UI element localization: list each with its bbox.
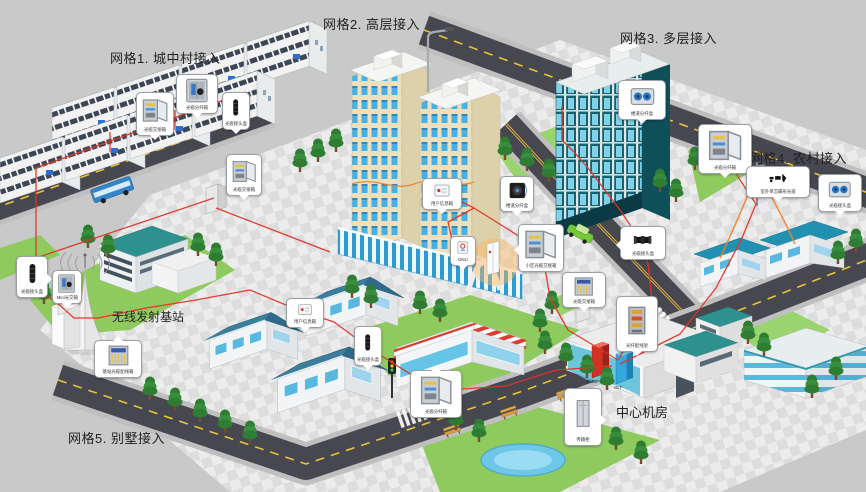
grid2-label: 网格2. 高层接入 [323, 14, 420, 33]
omdf-tag: OMDF [586, 379, 599, 384]
open-cabinet-icon [231, 157, 257, 186]
grid1-label: 网格1. 城中村接入 [110, 48, 220, 67]
callout-user-info-box-2: 用户信息箱 [286, 298, 324, 328]
callout-onu: ONU [450, 236, 476, 266]
callout-splice-closure-5: 光缆接头盒 [354, 326, 382, 366]
cabinet-icon [56, 273, 77, 294]
callout-distribution-box-3: 光缆分纤箱 [410, 370, 462, 418]
callout-cross-connect-cabinet-1: 光缆交接箱 [136, 92, 174, 136]
callout-corridor-splitter-box-2: 楼道分纤盒 [618, 80, 666, 120]
fiber-cabinet-icon [567, 275, 600, 298]
splice-closure-horizontal-icon [625, 229, 660, 250]
callout-distribution-box-1: 光缆分纤箱 [176, 74, 218, 114]
callout-splice-closure-2: 光缆接头盒 [16, 256, 48, 298]
rack-icon [100, 343, 137, 368]
cabinet-icon [181, 77, 213, 104]
callout-distribution-box-2: 光缆分纤箱 [698, 124, 752, 174]
callout-splice-closure-3: 光缆接头盒 [620, 226, 666, 260]
open-cabinet-icon [141, 95, 169, 126]
callout-mini-cabinet: Mini光交箱 [52, 270, 82, 304]
spool-box-icon [823, 177, 856, 202]
flat-box-icon [291, 301, 319, 318]
central-office-label: 中心机房 [616, 402, 668, 421]
splice-closure-vertical-icon [358, 329, 377, 356]
spool-box-icon [624, 83, 661, 110]
grid3-label: 网格3. 多层接入 [620, 28, 717, 47]
grid3-midrise-building [556, 41, 670, 238]
open-cabinet-icon [704, 127, 746, 164]
callout-base-station-distribution: 基站光缆配线箱 [94, 340, 142, 378]
city-illustration [0, 0, 866, 492]
ftth-network-diagram: 网格1. 城中村接入 网格2. 高层接入 网格3. 多层接入 网格4. 农村接入… [0, 0, 866, 492]
open-cabinet-icon [523, 227, 558, 262]
callout-splice-closure-1: 光缆接头盒 [222, 92, 250, 130]
callout-drop-cable-fittings: 室外单芯蝶形光缆 [746, 166, 810, 198]
grid5-label: 网格5. 别墅接入 [68, 428, 165, 447]
callout-community-cross-connect: 小区光缆交接箱 [518, 224, 564, 272]
onu-icon [454, 239, 472, 256]
wireless-base-station-label: 无线发射基站 [112, 308, 184, 325]
callout-cross-connect-cabinet-2: 光缆交接箱 [226, 154, 262, 196]
callout-transmission-cabinet: 传输柜 [564, 388, 602, 446]
callout-splice-closure-4: 光缆接头盒 [818, 174, 862, 212]
aerial-fittings-icon [752, 169, 803, 188]
fiber-frame-icon [621, 299, 653, 342]
splice-closure-vertical-icon [226, 95, 245, 120]
callout-corridor-splitter-box-1: 楼道分纤盒 [500, 176, 534, 212]
tall-cabinet-icon [569, 391, 597, 436]
grid4-label: 网格4. 农村接入 [750, 148, 847, 167]
cable-reel-icon [505, 179, 530, 202]
flat-box-icon [427, 181, 457, 200]
callout-user-info-box-1: 用户信息箱 [422, 178, 462, 210]
splice-closure-vertical-icon [21, 259, 44, 288]
open-cabinet-icon [416, 373, 456, 408]
callout-cross-connect-cabinet-3: 光缆交接箱 [562, 272, 606, 308]
olt-tag: OLT [614, 385, 622, 390]
callout-fiber-frame: 光纤配线架 [616, 296, 658, 352]
